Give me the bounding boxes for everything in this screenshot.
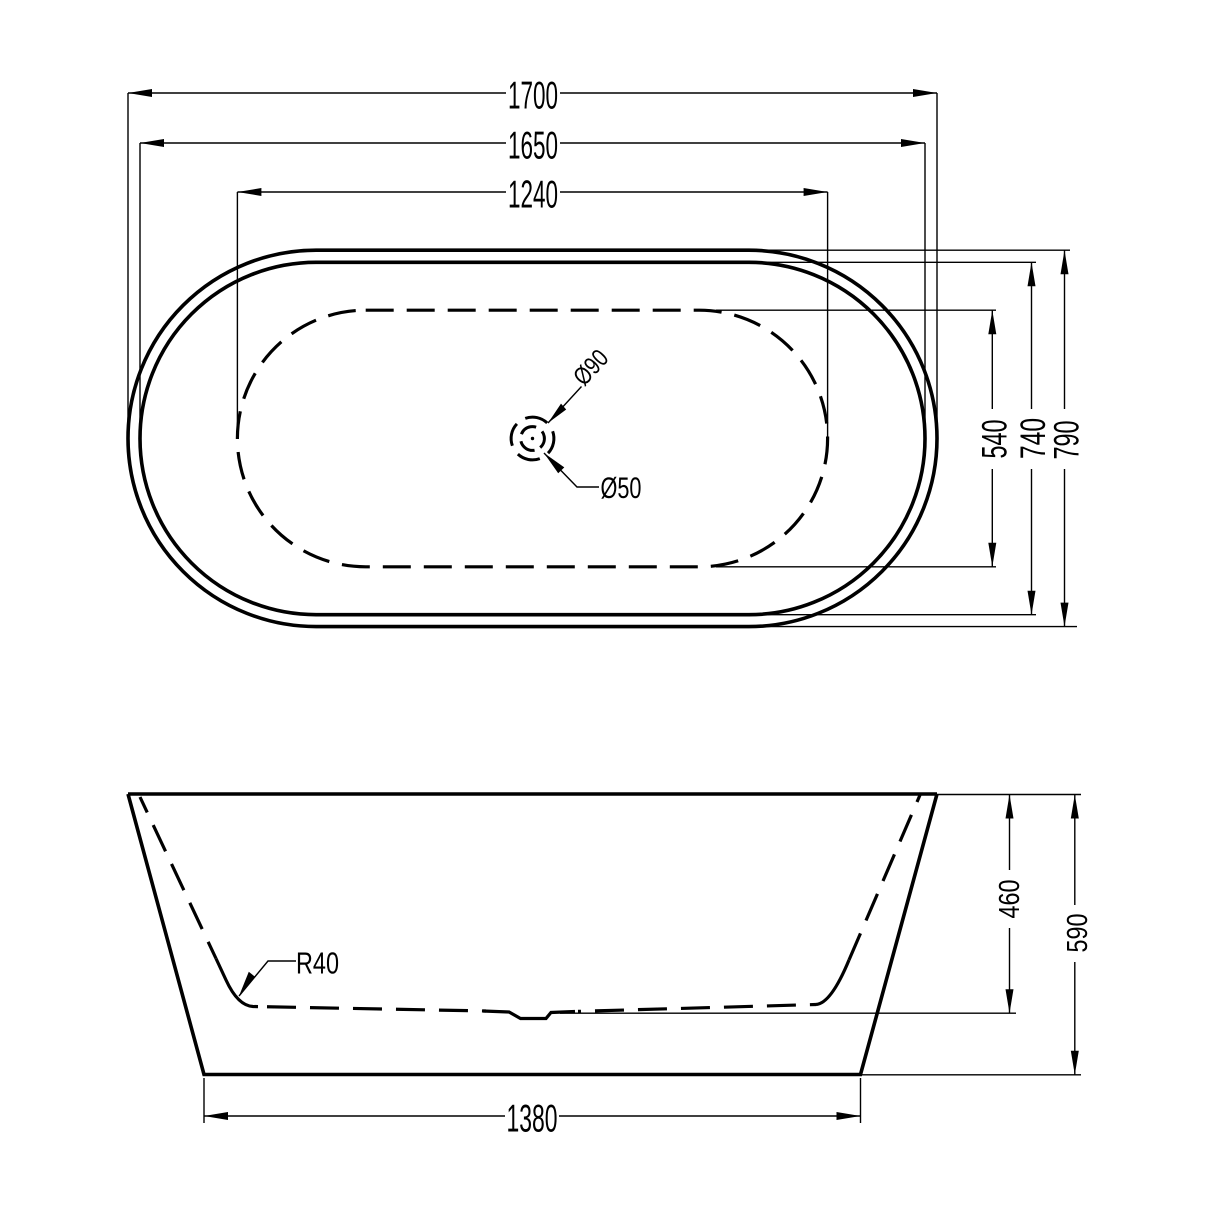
svg-text:1650: 1650 — [508, 125, 558, 168]
svg-text:460: 460 — [994, 880, 1026, 919]
svg-text:590: 590 — [1062, 914, 1094, 953]
svg-text:540: 540 — [976, 420, 1015, 459]
svg-text:1700: 1700 — [508, 75, 558, 118]
svg-text:790: 790 — [1048, 421, 1087, 460]
svg-text:1240: 1240 — [508, 174, 558, 217]
svg-text:Ø90: Ø90 — [568, 344, 614, 391]
svg-text:R40: R40 — [296, 946, 339, 981]
svg-text:Ø50: Ø50 — [601, 472, 642, 505]
svg-text:1380: 1380 — [507, 1098, 558, 1141]
